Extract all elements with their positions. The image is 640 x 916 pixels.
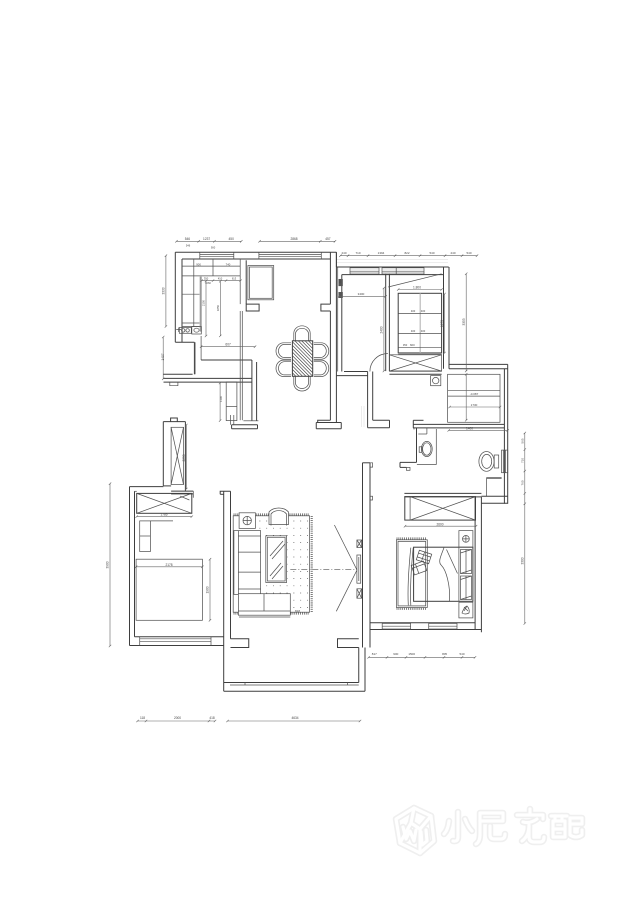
svg-text:540: 540	[459, 652, 464, 656]
svg-text:2400: 2400	[380, 326, 384, 333]
svg-text:2250: 2250	[182, 454, 186, 461]
svg-text:710: 710	[520, 458, 524, 463]
svg-text:2000: 2000	[174, 716, 181, 720]
svg-text:1850: 1850	[216, 304, 220, 311]
svg-text:1500: 1500	[408, 652, 415, 656]
svg-text:3900: 3900	[106, 561, 110, 568]
svg-text:2150: 2150	[202, 299, 206, 306]
svg-text:418: 418	[209, 716, 215, 720]
svg-text:1.800: 1.800	[413, 286, 421, 290]
svg-text:546: 546	[186, 244, 191, 248]
svg-text:1407: 1407	[161, 353, 165, 360]
svg-text:400: 400	[421, 329, 426, 333]
svg-text:400: 400	[411, 309, 416, 313]
svg-text:400: 400	[411, 329, 416, 333]
svg-text:613: 613	[232, 277, 237, 281]
svg-text:1237: 1237	[203, 237, 210, 241]
svg-text:3300: 3300	[520, 557, 524, 564]
svg-text:457: 457	[325, 237, 331, 241]
svg-text:2600: 2600	[436, 522, 443, 526]
svg-text:710: 710	[355, 251, 360, 255]
svg-text:240: 240	[341, 251, 346, 255]
svg-text:1900: 1900	[206, 586, 210, 593]
svg-text:350: 350	[403, 343, 408, 347]
svg-text:4634: 4634	[291, 716, 298, 720]
svg-text:900: 900	[211, 246, 216, 250]
svg-text:565: 565	[520, 438, 524, 443]
svg-text:817: 817	[372, 652, 377, 656]
svg-text:118: 118	[140, 716, 145, 720]
svg-text:3333: 3333	[162, 287, 166, 294]
svg-text:1400: 1400	[466, 426, 473, 430]
svg-text:805: 805	[442, 652, 447, 656]
svg-text:1100: 1100	[219, 396, 223, 402]
svg-text:760: 760	[520, 480, 524, 485]
svg-text:-0.087: -0.087	[470, 392, 479, 396]
svg-text:540: 540	[429, 251, 434, 255]
svg-text:410: 410	[218, 277, 223, 281]
svg-text:2868: 2868	[290, 237, 297, 241]
svg-text:400: 400	[421, 309, 426, 313]
svg-text:450: 450	[229, 237, 235, 241]
svg-text:740: 740	[226, 263, 231, 267]
svg-text:822: 822	[404, 251, 409, 255]
svg-text:1786: 1786	[160, 513, 167, 517]
svg-text:818: 818	[295, 609, 300, 613]
svg-text:540: 540	[466, 251, 471, 255]
svg-text:240: 240	[450, 251, 455, 255]
svg-text:900: 900	[196, 263, 201, 267]
svg-text:3400: 3400	[358, 292, 365, 296]
svg-text:600: 600	[410, 343, 415, 347]
svg-text:1730: 1730	[471, 403, 478, 407]
svg-text:1973: 1973	[440, 320, 444, 327]
svg-text:600: 600	[338, 278, 342, 283]
svg-text:1394: 1394	[378, 251, 385, 255]
svg-text:546: 546	[185, 237, 191, 241]
svg-text:900: 900	[393, 652, 398, 656]
svg-text:607: 607	[225, 343, 231, 347]
svg-text:2178: 2178	[165, 563, 172, 567]
svg-text:350: 350	[204, 277, 209, 281]
svg-text:3353: 3353	[462, 318, 466, 325]
